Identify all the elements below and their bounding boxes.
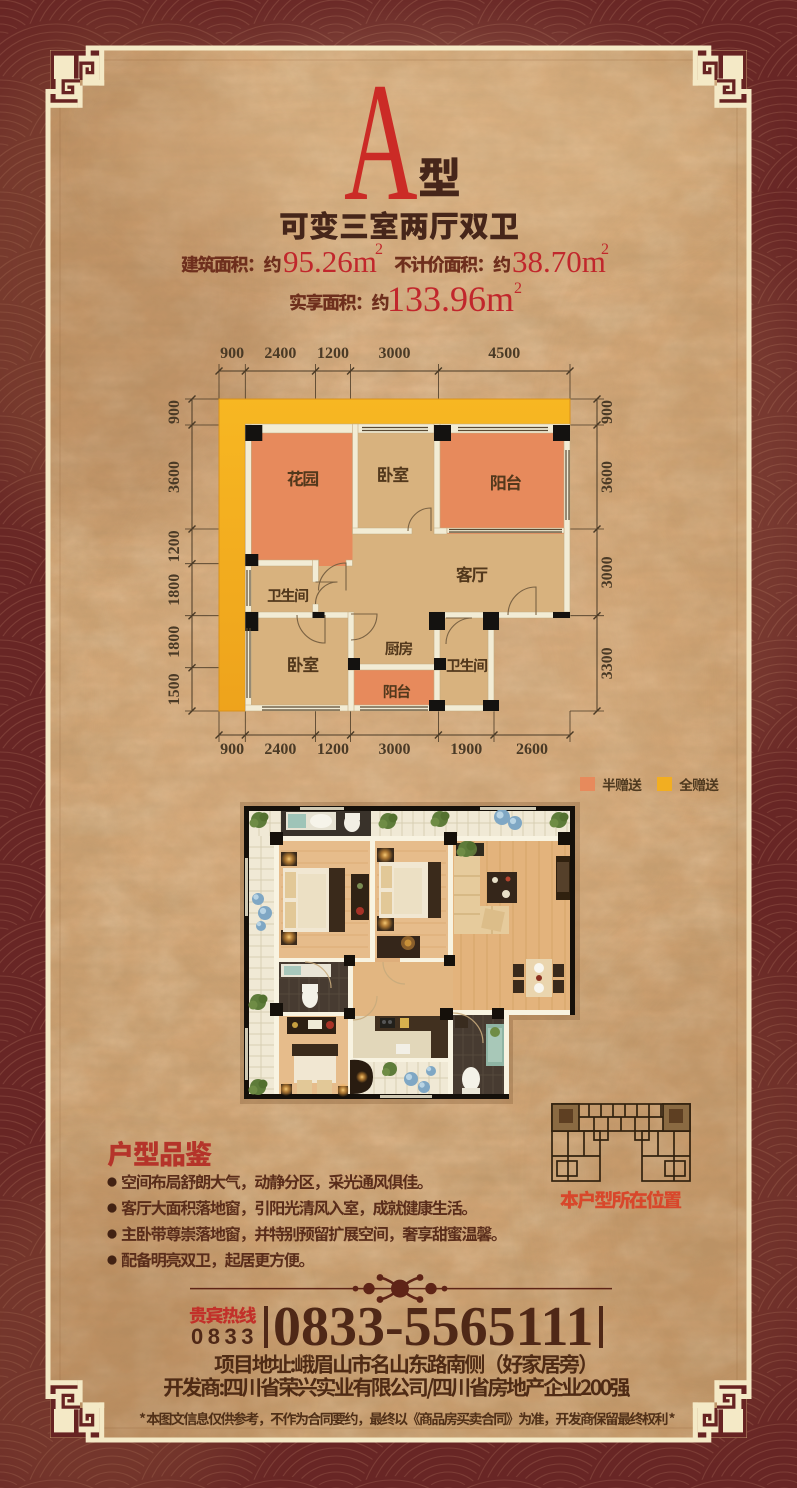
svg-text:2600: 2600 (516, 741, 548, 758)
svg-text:2: 2 (375, 241, 383, 258)
svg-text:1900: 1900 (450, 741, 482, 758)
svg-text:900: 900 (220, 741, 244, 758)
svg-text:2400: 2400 (264, 345, 296, 362)
svg-text:95.26m: 95.26m (283, 244, 377, 279)
svg-text:900: 900 (599, 400, 616, 424)
svg-text:1800: 1800 (166, 574, 183, 606)
svg-text:1200: 1200 (317, 741, 349, 758)
svg-text:133.96m: 133.96m (387, 279, 514, 319)
svg-text:3000: 3000 (599, 556, 616, 588)
svg-text:900: 900 (166, 400, 183, 424)
svg-text:3600: 3600 (166, 461, 183, 493)
svg-text:1800: 1800 (166, 626, 183, 658)
svg-text:2400: 2400 (264, 741, 296, 758)
svg-text:0833: 0833 (191, 1324, 258, 1349)
svg-text:3600: 3600 (599, 461, 616, 493)
svg-text:1200: 1200 (166, 530, 183, 562)
svg-text:2: 2 (601, 241, 609, 258)
svg-text:3000: 3000 (379, 741, 411, 758)
svg-text:900: 900 (220, 345, 244, 362)
svg-text:3000: 3000 (379, 345, 411, 362)
svg-text:2: 2 (514, 280, 522, 297)
svg-text:4500: 4500 (488, 345, 520, 362)
svg-text:1500: 1500 (166, 673, 183, 705)
svg-text:3300: 3300 (599, 647, 616, 679)
svg-text:0833-5565111: 0833-5565111 (273, 1296, 593, 1358)
svg-text:1200: 1200 (317, 345, 349, 362)
svg-text:A: A (344, 49, 418, 237)
svg-text:38.70m: 38.70m (512, 244, 606, 279)
